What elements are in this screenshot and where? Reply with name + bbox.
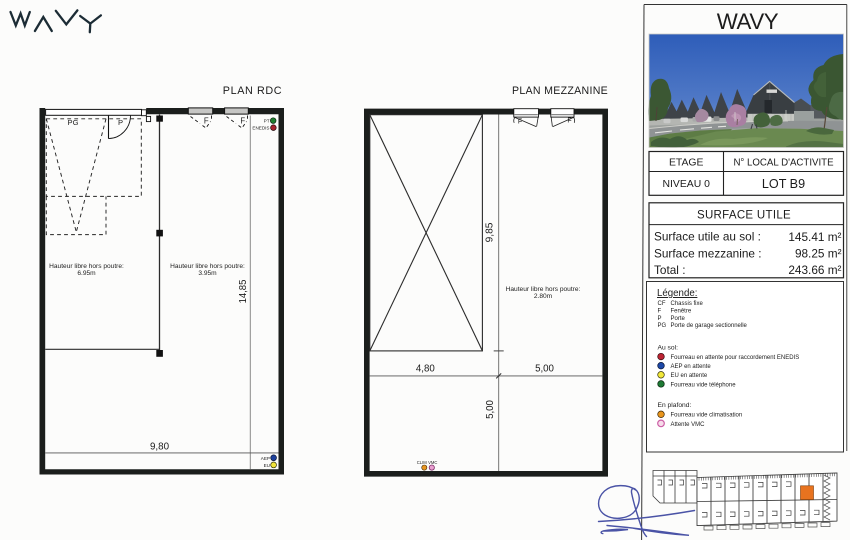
svg-text:243.66 m²: 243.66 m² xyxy=(788,263,841,277)
svg-text:N° LOCAL D'ACTIVITE: N° LOCAL D'ACTIVITE xyxy=(733,157,834,168)
svg-text:P: P xyxy=(118,118,123,127)
svg-text:Légende:: Légende: xyxy=(657,288,697,299)
svg-text:Total :: Total : xyxy=(654,263,685,277)
svg-text:3.95m: 3.95m xyxy=(198,270,217,277)
svg-text:WAVY: WAVY xyxy=(717,9,779,34)
svg-text:PT: PT xyxy=(264,119,270,124)
svg-text:AEP: AEP xyxy=(261,456,270,461)
svg-text:VMC: VMC xyxy=(428,460,437,465)
svg-text:14,85: 14,85 xyxy=(238,279,249,303)
svg-text:F: F xyxy=(567,118,571,125)
svg-text:Porte de garage sectionnelle: Porte de garage sectionnelle xyxy=(671,323,748,329)
svg-text:Hauteur libre hors poutre:: Hauteur libre hors poutre: xyxy=(49,263,124,270)
svg-text:En plafond:: En plafond: xyxy=(658,402,692,409)
svg-text:2.80m: 2.80m xyxy=(534,293,553,300)
svg-text:Fourreau vide climatisation: Fourreau vide climatisation xyxy=(671,413,743,419)
svg-text:Au sol:: Au sol: xyxy=(658,345,679,352)
svg-text:EU en attente: EU en attente xyxy=(671,373,708,379)
svg-text:LOT B9: LOT B9 xyxy=(762,177,805,191)
svg-text:4,80: 4,80 xyxy=(416,364,435,375)
svg-text:Fourreau vide téléphone: Fourreau vide téléphone xyxy=(671,382,737,388)
svg-text:Hauteur libre hors poutre:: Hauteur libre hors poutre: xyxy=(506,286,581,293)
svg-text:ETAGE: ETAGE xyxy=(669,157,704,168)
svg-text:PLAN RDC: PLAN RDC xyxy=(223,85,282,97)
svg-text:98.25 m²: 98.25 m² xyxy=(795,247,842,261)
svg-text:P: P xyxy=(658,316,662,322)
svg-text:Hauteur libre hors poutre:: Hauteur libre hors poutre: xyxy=(170,263,245,270)
svg-text:5,00: 5,00 xyxy=(535,364,554,375)
svg-text:EU: EU xyxy=(264,463,270,468)
svg-text:5,00: 5,00 xyxy=(485,399,496,418)
svg-text:6.95m: 6.95m xyxy=(77,270,96,277)
svg-text:PG: PG xyxy=(68,118,79,127)
svg-text:Surface mezzanine :: Surface mezzanine : xyxy=(654,246,762,260)
svg-text:F: F xyxy=(658,309,662,315)
svg-text:Attente VMC: Attente VMC xyxy=(671,422,706,428)
svg-text:Chassis fixe: Chassis fixe xyxy=(671,301,704,307)
svg-text:F: F xyxy=(204,117,209,126)
svg-text:AEP en attente: AEP en attente xyxy=(671,364,712,370)
svg-text:SURFACE UTILE: SURFACE UTILE xyxy=(697,210,791,222)
svg-text:CF: CF xyxy=(658,301,666,307)
svg-text:CLIM: CLIM xyxy=(417,460,428,465)
svg-text:F: F xyxy=(240,117,245,126)
svg-text:9,80: 9,80 xyxy=(150,442,170,453)
svg-text:Porte: Porte xyxy=(671,316,686,322)
svg-text:PG: PG xyxy=(658,323,667,329)
svg-text:Surface utile au sol :: Surface utile au sol : xyxy=(654,230,761,244)
svg-text:9,85: 9,85 xyxy=(484,222,495,242)
svg-text:Fourreau en attente pour racco: Fourreau en attente pour raccordement EN… xyxy=(671,355,800,361)
svg-text:145.41 m²: 145.41 m² xyxy=(788,230,841,244)
svg-text:ENEDIS: ENEDIS xyxy=(252,126,269,131)
svg-text:NIVEAU 0: NIVEAU 0 xyxy=(663,179,711,190)
svg-text:PLAN MEZZANINE: PLAN MEZZANINE xyxy=(512,85,608,97)
svg-text:F: F xyxy=(518,118,522,125)
svg-text:Fenêtre: Fenêtre xyxy=(671,309,692,315)
